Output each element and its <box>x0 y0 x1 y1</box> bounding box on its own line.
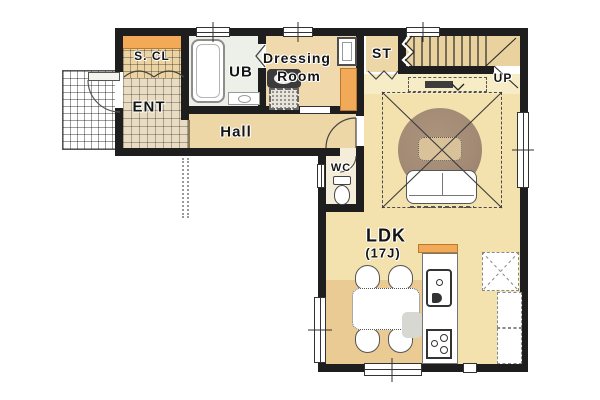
kitchen-service-door <box>463 363 477 373</box>
wc-door-opening <box>340 148 356 156</box>
kitchen-counter-end <box>418 244 458 253</box>
tall-cabinet <box>340 68 357 111</box>
kitchen-sink <box>426 269 452 307</box>
ub-counter-sink <box>228 92 260 105</box>
pantry-shelf <box>497 328 522 364</box>
coffee-table <box>418 137 462 161</box>
wall-ub-dressing-a <box>258 36 266 44</box>
window-above-stairs <box>406 27 440 37</box>
pantry-shelf <box>497 292 522 328</box>
label-wc: WC <box>331 162 351 174</box>
washing-machine <box>269 88 299 110</box>
window-above-dressing <box>283 27 313 37</box>
window-living-right <box>517 112 529 188</box>
dining-chair <box>388 265 413 290</box>
label-storage: ST <box>372 45 392 61</box>
porch <box>62 70 122 150</box>
shoe-closet-shelf <box>123 36 181 49</box>
label-ldk-size: (17J) <box>365 246 400 261</box>
eave-line <box>182 158 184 218</box>
refrigerator-space <box>482 252 519 291</box>
hall-floor <box>189 114 356 148</box>
wall-bottom <box>318 364 528 372</box>
sliding-door-dressing-hall <box>300 106 330 114</box>
stairs-floor <box>406 36 520 66</box>
wall-stairs-bottom <box>398 66 494 74</box>
floor-plan: S. CL UB Dressing Room ST UP ENT Hall WC… <box>0 0 600 400</box>
toilet-tank <box>333 176 351 185</box>
window-dining-bottom <box>364 363 422 376</box>
shower-cabinet <box>337 37 357 66</box>
window-above-ub <box>196 27 230 37</box>
sofa <box>406 170 477 204</box>
tv-board <box>408 77 487 92</box>
wall-dressing-right-b <box>356 146 364 212</box>
entrance-step-line <box>188 120 190 148</box>
eave-line <box>187 158 189 218</box>
dining-chair <box>355 265 380 290</box>
wall-hall-bottom <box>115 148 330 156</box>
gas-stove <box>426 329 452 359</box>
bathtub <box>191 39 225 103</box>
window-ldk-left <box>314 297 326 363</box>
label-dressing-line2: Room <box>277 68 321 84</box>
window-wc <box>317 164 325 188</box>
label-entrance: ENT <box>133 99 166 116</box>
label-unit-bath: UB <box>229 64 253 81</box>
worktop-items <box>402 312 422 338</box>
wall-dressing-right-a <box>356 36 364 116</box>
toilet-bowl <box>334 185 350 205</box>
label-up: UP <box>494 71 513 85</box>
entrance-door-leaf <box>88 72 120 81</box>
label-ldk: LDK <box>366 226 406 247</box>
label-dressing-line1: Dressing <box>263 50 331 66</box>
wall-wc-bottom <box>318 204 364 212</box>
label-hall: Hall <box>220 124 252 141</box>
label-shoe-closet: S. CL <box>134 49 170 63</box>
wall-top <box>115 28 528 36</box>
wall-left-a <box>115 28 123 72</box>
dining-chair <box>355 328 380 353</box>
wall-wc-top <box>326 148 340 156</box>
